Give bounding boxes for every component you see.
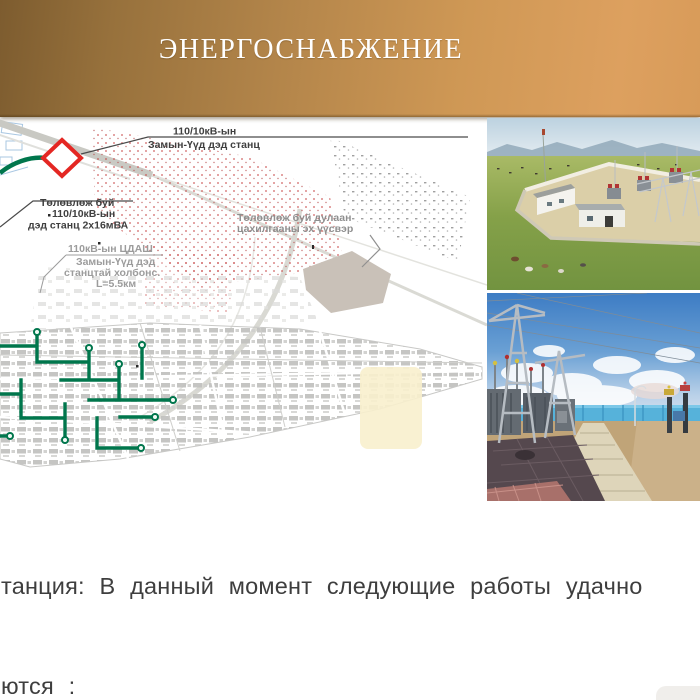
map-town-gray-dots	[330, 137, 470, 262]
map-label-bottom-4: L=5.5км	[96, 278, 136, 290]
render-mast-top	[542, 129, 545, 135]
photo-substation-render	[487, 118, 700, 290]
corner-placeholder-shape	[656, 686, 700, 700]
body-line-2: ются :	[1, 670, 700, 700]
map-highlight-block	[360, 367, 422, 449]
map-label-right-2: цахилгааны эх үүсвэр	[237, 223, 353, 235]
presentation-slide: ЭНЕРГОСНАБЖЕНИЕ	[0, 0, 700, 700]
slide-title: ЭНЕРГОСНАБЖЕНИЕ	[0, 34, 622, 66]
city-plan-map: 110/10кВ-ын Замын-Үүд дэд станц Төлөвлөж…	[0, 117, 487, 505]
map-label-top-1: 110/10кВ-ын	[173, 126, 236, 138]
map-label-left-2: 110/10кВ-ын	[52, 208, 115, 220]
map-110kv-line	[0, 158, 46, 173]
map-label-top-2: Замын-Үүд дэд станц	[148, 139, 260, 151]
map-label-left-3: дэд станц 2х16мВА	[28, 220, 129, 232]
map-label-bottom-1: 110кВ-ын ЦДАШ	[68, 243, 153, 255]
photo-substation-site	[487, 293, 700, 501]
body-text: танция: В данный момент следующие работы…	[1, 503, 700, 700]
slide-header: ЭНЕРГОСНАБЖЕНИЕ	[0, 0, 700, 117]
body-line-1: танция: В данный момент следующие работы…	[1, 570, 700, 603]
